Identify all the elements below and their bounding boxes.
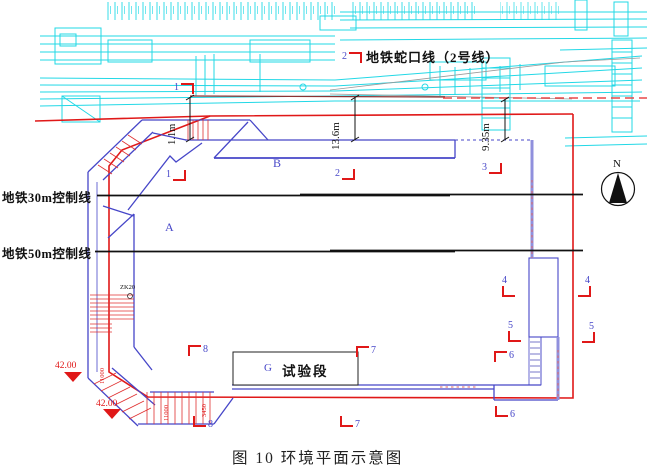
section-marker-6-bottom: 6 xyxy=(495,406,515,419)
dimension-lines xyxy=(186,95,509,142)
dimension-9-35m: 9.35m xyxy=(480,123,492,151)
section-cut-icon xyxy=(181,83,194,94)
section-marker-7-bottom: 7 xyxy=(340,416,360,429)
borehole-symbol xyxy=(128,294,133,299)
section-marker-4-left: 4 xyxy=(502,276,515,297)
control-line-30m-label: 地铁30m控制线 xyxy=(2,187,91,206)
dimension-1-1m: 1.1m xyxy=(167,124,178,145)
section-cut-icon xyxy=(173,170,186,181)
metro-line-label: 地铁蛇口线（2号线） xyxy=(366,47,500,66)
dimension-11000-b: 11000 xyxy=(163,405,170,421)
section-cut-icon xyxy=(508,331,521,342)
north-label: N xyxy=(613,158,621,170)
dimension-11000-a: 11000 xyxy=(99,368,106,384)
section-cut-icon xyxy=(340,416,353,427)
figure-environment-plan: 地铁蛇口线（2号线） 地铁30m控制线 地铁50m控制线 A B G 试验段 N… xyxy=(0,0,647,474)
section-marker-4-right: 4 xyxy=(578,276,591,297)
section-cut-icon xyxy=(578,286,591,297)
section-marker-2-mid: 2 xyxy=(335,169,355,180)
section-marker-1-mid: 1 xyxy=(166,170,186,181)
section-cut-icon xyxy=(349,52,362,63)
section-marker-1-top: 1 xyxy=(174,83,194,94)
test-section-label: 试验段 xyxy=(282,360,329,380)
section-cut-icon xyxy=(494,351,507,362)
region-b-label: B xyxy=(273,156,281,171)
region-a-label: A xyxy=(165,220,174,235)
borehole-label: ZK20 xyxy=(120,284,135,291)
north-arrow-icon xyxy=(602,173,635,206)
section-marker-2-top: 2 xyxy=(342,52,362,63)
slope-hatching xyxy=(90,120,210,424)
figure-caption: 图 10 环境平面示意图 xyxy=(232,446,403,468)
section-marker-5-left: 5 xyxy=(508,321,521,342)
section-marker-7-top: 7 xyxy=(356,346,376,357)
control-line-50m-label: 地铁50m控制线 xyxy=(2,243,91,262)
section-marker-8-bottom: 8 xyxy=(193,416,213,429)
east-stair-hatching xyxy=(530,342,540,378)
section-cut-icon xyxy=(502,286,515,297)
section-marker-8-top: 8 xyxy=(188,345,208,356)
section-cut-icon xyxy=(495,406,508,417)
region-g-label: G xyxy=(264,362,272,374)
section-cut-icon xyxy=(356,346,369,357)
section-cut-icon xyxy=(582,332,595,343)
metro-corridor-lines xyxy=(40,0,647,146)
section-marker-5-right: 5 xyxy=(582,322,595,343)
diaphragm-wall xyxy=(532,140,558,400)
section-cut-icon xyxy=(489,163,502,174)
wall-red-dots xyxy=(440,180,558,398)
elevation-2: 42.00 xyxy=(96,399,117,409)
section-marker-6-mid: 6 xyxy=(494,351,514,362)
section-cut-icon xyxy=(188,345,201,356)
section-cut-icon xyxy=(342,169,355,180)
section-marker-3: 3 xyxy=(482,163,502,174)
section-cut-icon xyxy=(193,416,206,427)
elevation-1: 42.00 xyxy=(55,361,76,371)
dimension-13-6m: 13.6m xyxy=(330,122,342,150)
